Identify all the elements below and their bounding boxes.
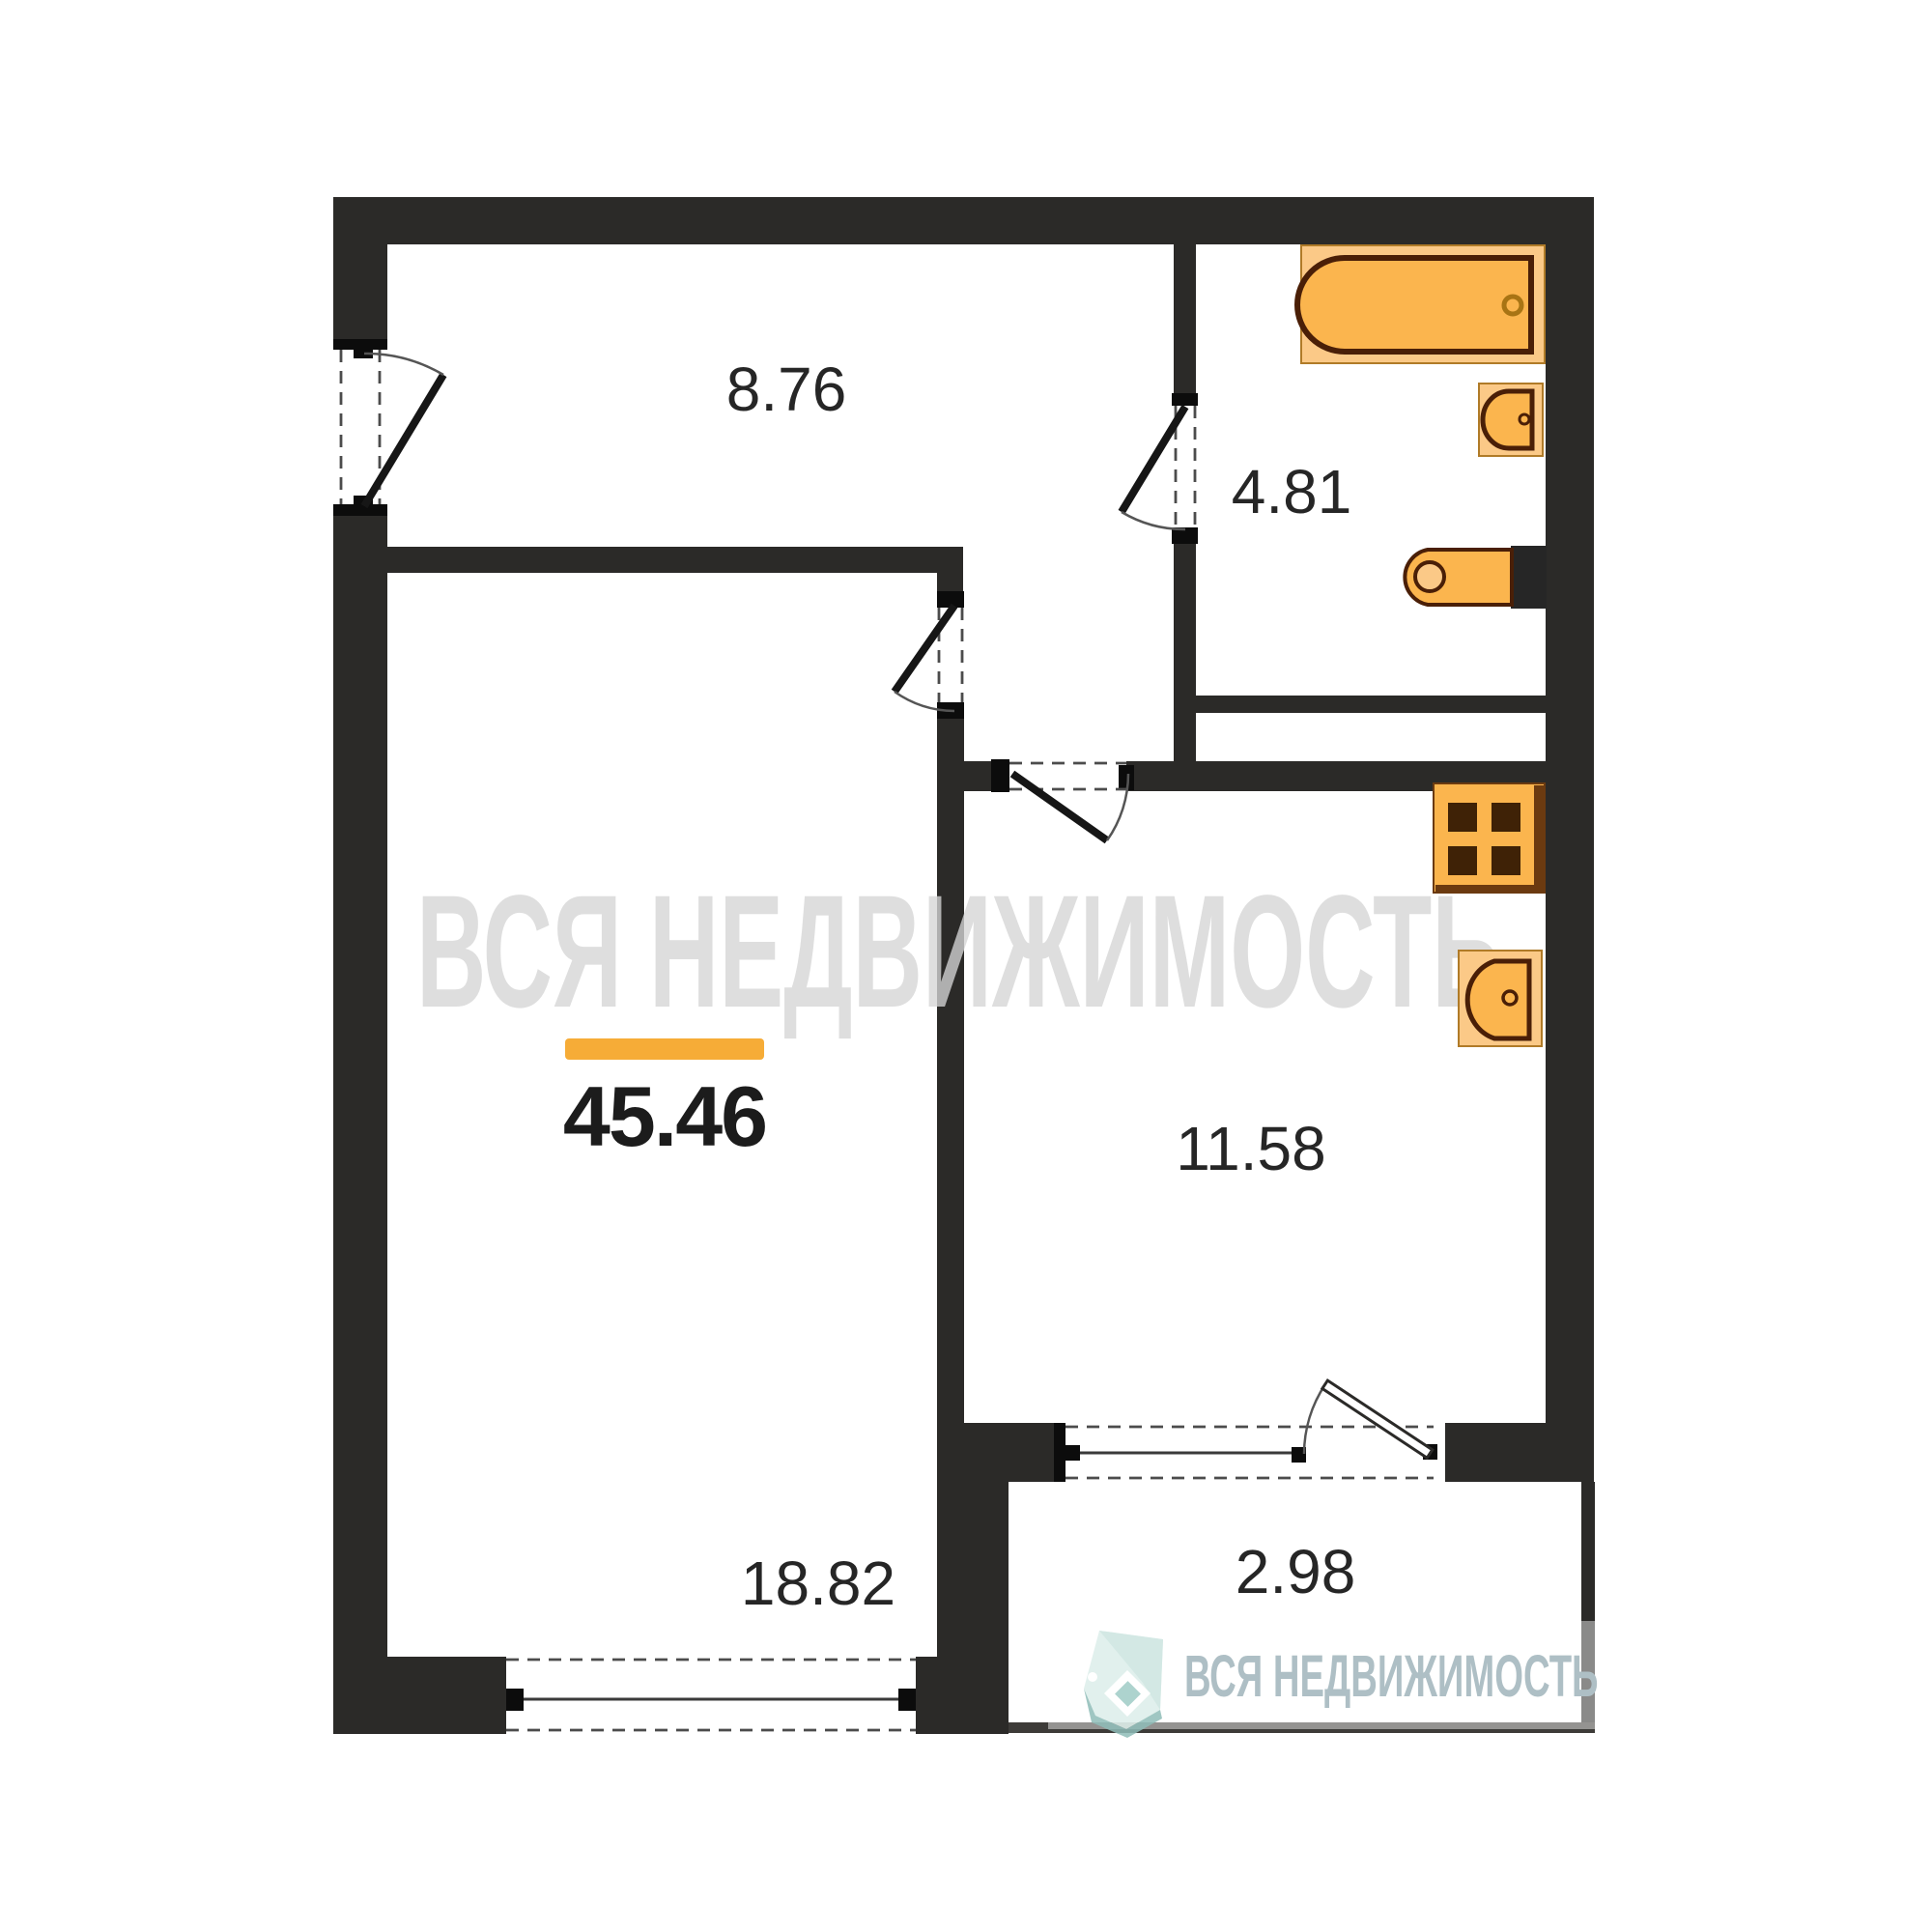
svg-text:4.81: 4.81 [1232,457,1352,526]
svg-text:11.58: 11.58 [1176,1114,1325,1183]
svg-text:8.76: 8.76 [726,355,847,424]
svg-text:ВСЯ НЕДВИЖИМОСТЬ: ВСЯ НЕДВИЖИМОСТЬ [1184,1643,1599,1709]
svg-text:18.82: 18.82 [741,1548,895,1618]
svg-text:45.46: 45.46 [563,1068,766,1164]
svg-text:2.98: 2.98 [1236,1537,1356,1606]
svg-text:ВСЯ НЕДВИЖИМОСТЬ: ВСЯ НЕДВИЖИМОСТЬ [416,863,1501,1041]
